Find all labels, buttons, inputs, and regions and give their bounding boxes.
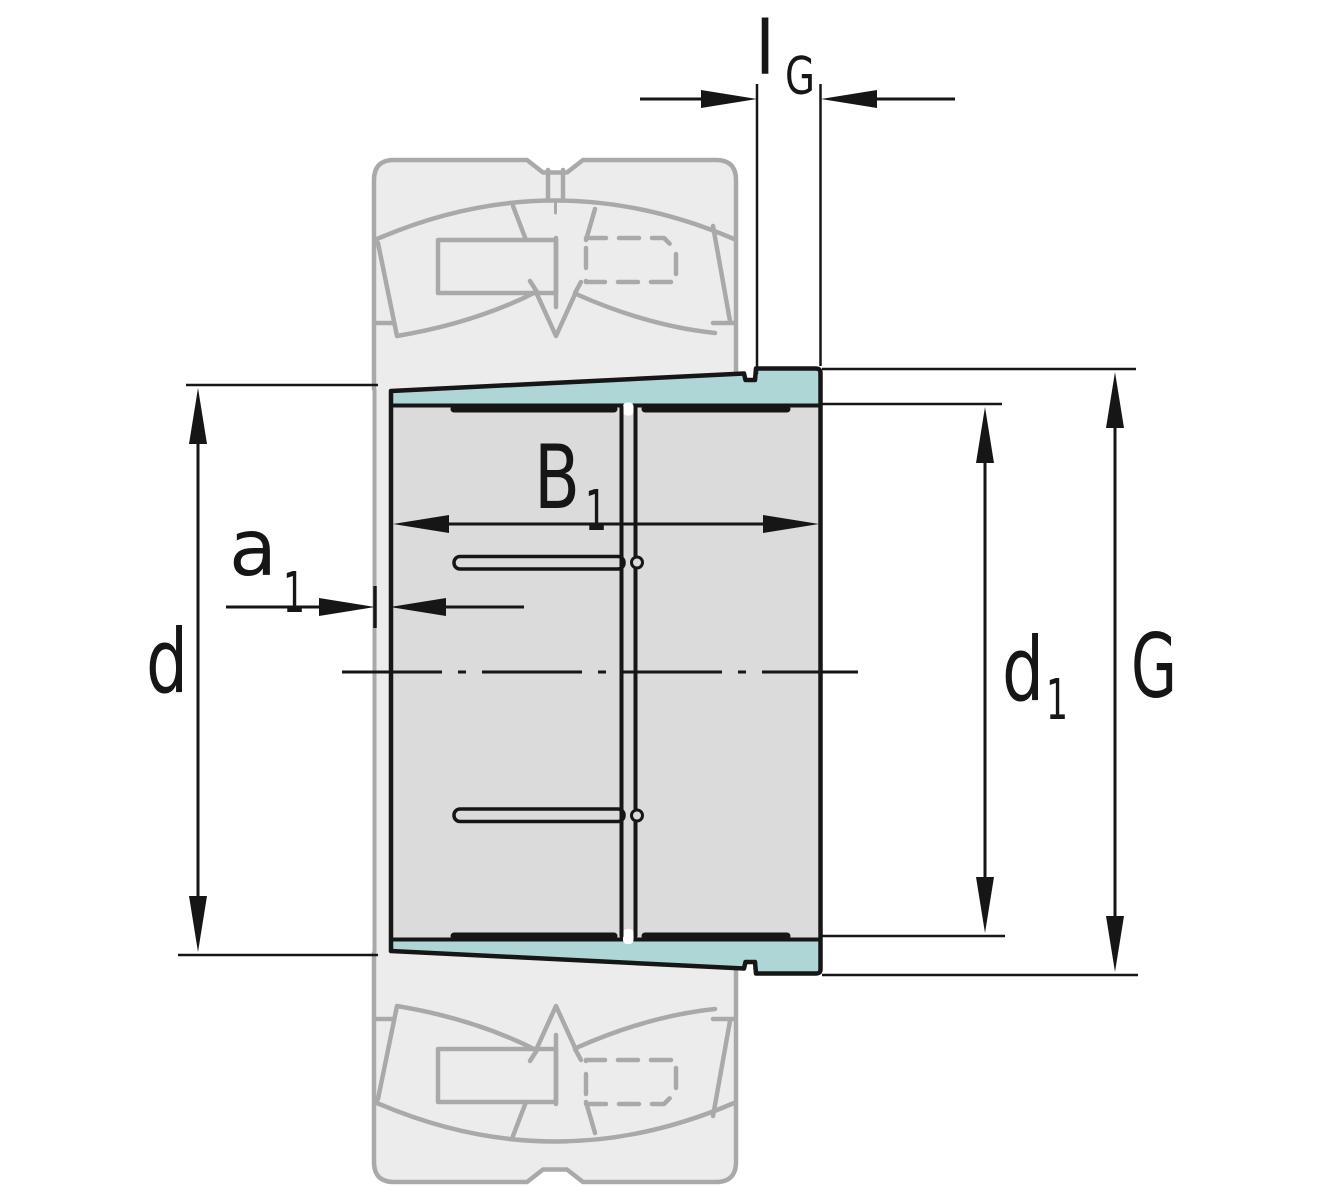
dim-d1-arrow-up — [976, 407, 994, 463]
dim-lg-arrow-right — [821, 90, 877, 108]
oil-hole-bottom — [632, 810, 643, 821]
oil-hole-top — [632, 557, 643, 568]
dim-lg-label-sub: G — [785, 47, 815, 107]
slit-gap-top — [623, 403, 634, 416]
adapter-sleeve-drawing: l G B 1 a 1 d d 1 — [0, 0, 1330, 1200]
dim-g-label: G — [1131, 615, 1177, 718]
ghost-bearing-top — [374, 160, 736, 389]
dim-g-arrow-down — [1106, 916, 1124, 972]
dim-g-arrow-up — [1106, 372, 1124, 428]
dim-b1-label-sub: 1 — [585, 479, 607, 544]
ghost-inner-ring-strip — [373, 387, 392, 953]
dim-d-arrow-down — [189, 896, 207, 952]
dim-a1-label: a — [229, 504, 277, 594]
technical-drawing-page: l G B 1 a 1 d d 1 — [0, 0, 1330, 1200]
dim-d-label: d — [146, 610, 188, 713]
dim-d1-label: d — [1002, 618, 1044, 721]
dim-d — [178, 385, 378, 955]
ghost-bearing-bottom — [374, 953, 736, 1182]
dim-lg-label: l — [755, 6, 776, 92]
dim-b1-label: B — [534, 426, 580, 529]
dim-d1 — [822, 404, 1005, 936]
dim-d1-arrow-down — [976, 877, 994, 933]
slit-gap-bottom — [623, 929, 634, 944]
dim-lg-arrow-left — [701, 90, 757, 108]
dim-d1-label-sub: 1 — [1046, 668, 1068, 733]
dim-a1-label-sub: 1 — [283, 561, 305, 626]
dim-d-arrow-up — [189, 388, 207, 444]
dim-a1-arrow-left — [319, 598, 375, 616]
